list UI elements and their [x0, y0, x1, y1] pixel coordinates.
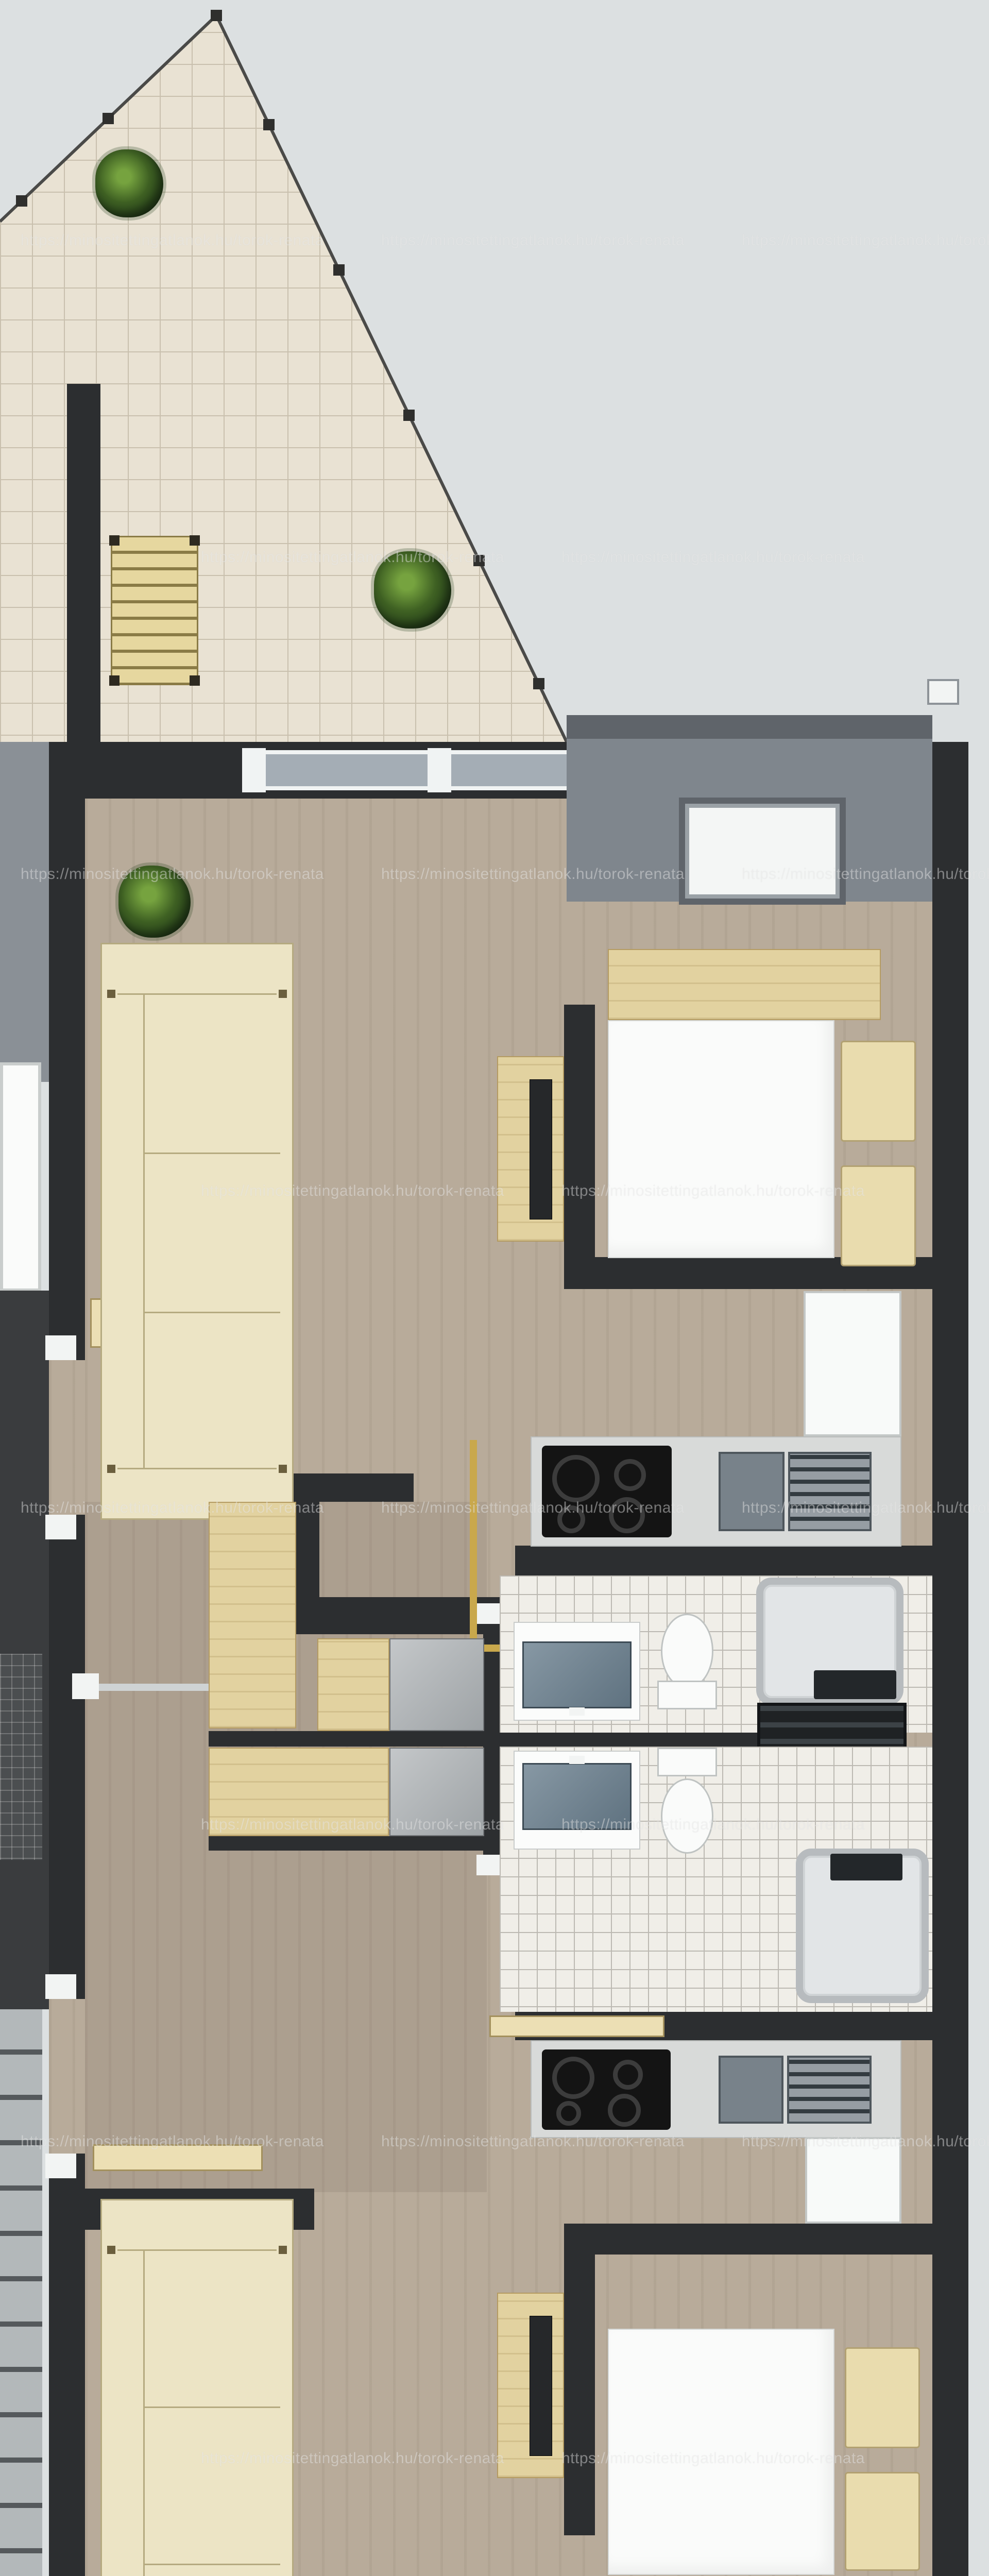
- fridge-a: [804, 1291, 901, 1436]
- sink-basin-b: [719, 2056, 783, 2124]
- door-jamb: [45, 1335, 76, 1360]
- sink-basin-a: [719, 1452, 785, 1531]
- double-bed-a: [608, 1020, 834, 1258]
- door-jamb: [45, 2154, 76, 2178]
- vent-grate: [0, 1654, 42, 1860]
- seat-cushion: [845, 2472, 920, 2571]
- fridge-b: [805, 2137, 901, 2224]
- wall-closet-b: [209, 1836, 484, 1851]
- tub-faucet-a: [814, 1670, 896, 1699]
- exterior-stairs: [0, 2009, 42, 2576]
- seat-cushion: [841, 1165, 916, 1266]
- tv: [530, 1079, 552, 1219]
- watermark-text: https://minositettingatlanok.hu/torok-re…: [742, 232, 989, 249]
- sink-drainer-a: [788, 1452, 872, 1531]
- door-jamb: [45, 1974, 76, 1999]
- wall-corridor-a: [296, 1597, 500, 1634]
- wardrobe-a: [209, 1502, 296, 1728]
- seat-cushion: [841, 1041, 916, 1142]
- mirror-cabinet-a: [389, 1638, 484, 1731]
- sofa-a: [100, 943, 294, 1520]
- wardrobe-b: [209, 1748, 389, 1836]
- tub-faucet-b: [830, 1854, 902, 1880]
- unit-divider-wall: [484, 1731, 762, 1747]
- stairwell-window: [0, 1062, 41, 1292]
- entry-opening-b: [49, 1999, 85, 2154]
- bath-door-frame: [470, 1440, 477, 1651]
- wall-bedroom-a: [564, 1005, 595, 1289]
- partition-jamb: [72, 1673, 99, 1699]
- unit-divider-wall: [209, 1731, 500, 1747]
- seat-cushion: [845, 2347, 920, 2448]
- canopy-edge: [567, 715, 932, 739]
- wall-closet-a: [296, 1502, 319, 1600]
- toilet-a: [661, 1614, 713, 1689]
- floor-plan-canvas: https://minositettingatlanok.hu/torok-re…: [0, 0, 989, 2576]
- door-jamb: [45, 1515, 76, 1539]
- headboard: [608, 949, 881, 1020]
- plant-icon: [118, 866, 191, 938]
- tap-icon: [569, 1707, 585, 1716]
- wall-bedroom-b: [564, 2255, 595, 2535]
- mirror-cabinet-b: [389, 1748, 484, 1836]
- door-frame: [242, 748, 266, 792]
- entry-opening-a: [49, 1360, 85, 1515]
- watermark-text: https://minositettingatlanok.hu/torok-re…: [561, 549, 865, 566]
- tv: [530, 2316, 552, 2456]
- terrace-plant-icon: [95, 149, 163, 217]
- sun-lounger: [111, 536, 198, 685]
- sink-drainer-b: [787, 2056, 872, 2124]
- side-wall: [0, 1291, 49, 2009]
- roof-vent: [927, 679, 959, 705]
- wall-bath-a: [515, 1546, 932, 1575]
- bath-door-leaf-b: [489, 2015, 664, 2037]
- washbasin-b: [522, 1763, 632, 1830]
- cabinet-a: [317, 1638, 389, 1731]
- terrace-plant-icon: [374, 551, 451, 629]
- double-bed-b: [608, 2329, 834, 2575]
- terrace-privacy-wall: [67, 384, 100, 744]
- toilet-tank-b: [657, 1748, 717, 1776]
- entry-door-leaf-b: [93, 2144, 263, 2171]
- toilet-tank-a: [657, 1681, 717, 1709]
- wall-bedroom-b: [564, 2224, 932, 2255]
- washbasin-a: [522, 1641, 632, 1708]
- cooktop-b: [542, 2049, 671, 2130]
- sofa-b: [100, 2199, 294, 2576]
- side-walkway: [0, 742, 49, 1082]
- skylight-window: [685, 804, 840, 899]
- toilet-b: [661, 1778, 713, 1854]
- tap-icon: [569, 1756, 585, 1764]
- cooktop-a: [542, 1446, 672, 1537]
- door-frame: [428, 748, 451, 792]
